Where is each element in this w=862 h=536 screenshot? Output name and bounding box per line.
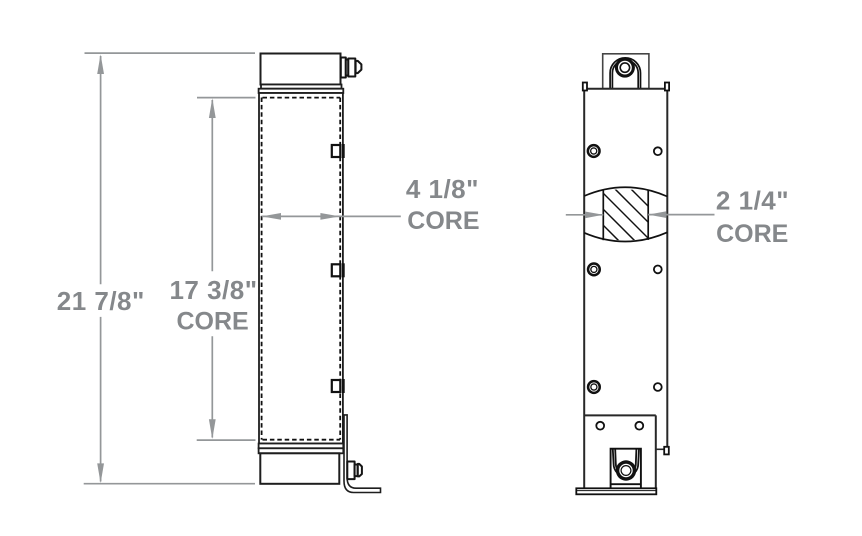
svg-text:17 3/8": 17 3/8" [169,275,257,305]
svg-text:2 1/4": 2 1/4" [716,186,789,216]
svg-text:4 1/8": 4 1/8" [406,174,479,204]
svg-text:21 7/8": 21 7/8" [57,286,145,316]
svg-text:CORE: CORE [407,207,479,235]
svg-text:CORE: CORE [176,308,248,336]
svg-text:CORE: CORE [716,220,788,248]
